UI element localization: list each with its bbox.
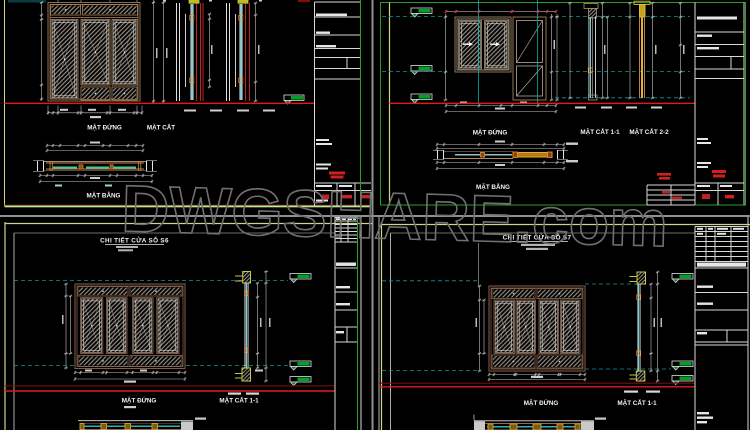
svg-text:MẶT CẮT 1-1: MẶT CẮT 1-1 <box>617 398 657 407</box>
svg-text:MẶT ĐỨNG: MẶT ĐỨNG <box>473 128 508 137</box>
svg-text:MẶT BẪNG: MẶT BẪNG <box>87 191 121 200</box>
svg-text:MẶT CẮT 2-2: MẶT CẮT 2-2 <box>629 127 669 136</box>
svg-text:MẶT CẮT 1-1: MẶT CẮT 1-1 <box>219 396 259 405</box>
svg-text:MẶT CẮT: MẶT CẮT <box>147 123 175 132</box>
svg-text:MẶT ĐỨNG: MẶT ĐỨNG <box>87 123 122 132</box>
svg-text:MẶT CẮT 1-1: MẶT CẮT 1-1 <box>580 127 620 136</box>
svg-text:MẶT ĐỨNG: MẶT ĐỨNG <box>524 398 559 407</box>
svg-text:DWGSHARE.com: DWGSHARE.com <box>121 171 669 260</box>
svg-text:MẶT ĐỨNG: MẶT ĐỨNG <box>122 396 157 405</box>
